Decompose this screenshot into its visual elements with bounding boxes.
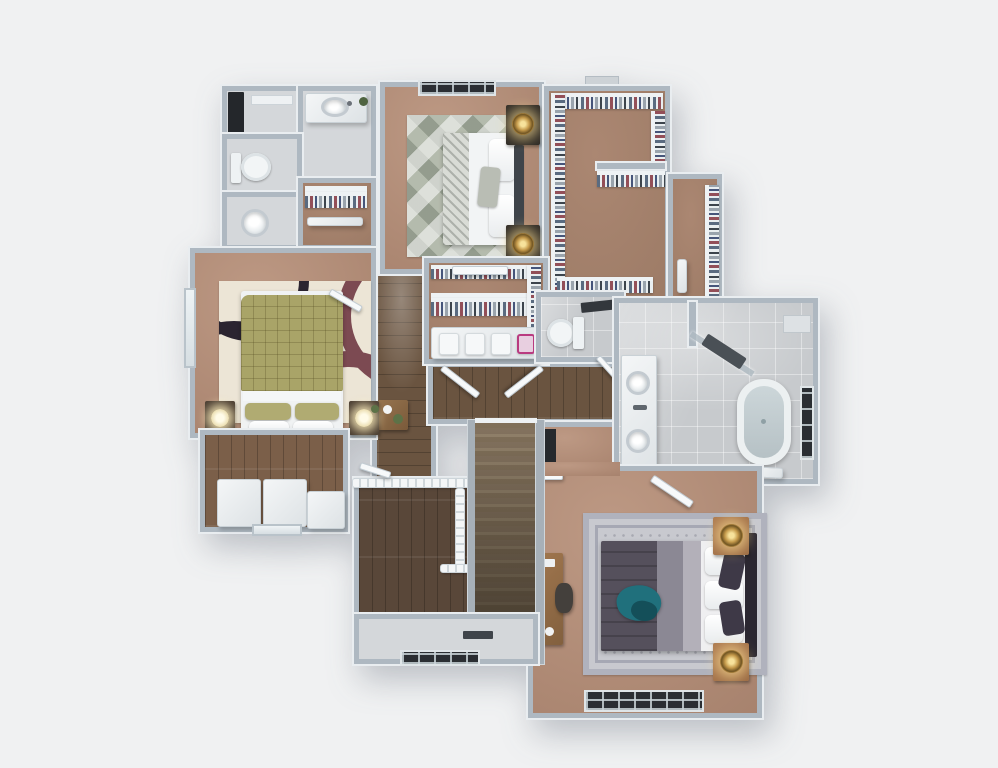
headboard — [514, 145, 524, 229]
room-powder — [222, 192, 302, 250]
lamp-icon — [512, 233, 534, 255]
window — [252, 524, 302, 536]
lamp-icon — [720, 524, 743, 547]
olive-pillow — [295, 403, 339, 420]
partition-wall — [597, 163, 665, 169]
tub-drain — [761, 419, 766, 424]
floorplan-image — [0, 0, 998, 768]
olive-pillow — [245, 403, 291, 420]
room-master-wc — [536, 292, 624, 362]
laundry-basket — [491, 333, 511, 355]
staircase-down — [475, 420, 537, 620]
laundry-basket-pink — [517, 334, 535, 354]
bed — [601, 541, 749, 651]
clothes-rack — [551, 93, 565, 295]
lamp-icon — [720, 650, 743, 673]
closet-shelf — [307, 217, 363, 226]
plant-icon — [393, 414, 403, 424]
room-hallbath-vanity — [298, 86, 376, 182]
room-master-bedroom — [528, 466, 762, 718]
window — [400, 650, 480, 666]
laundry-basket — [439, 333, 459, 355]
console-table — [378, 400, 408, 430]
tub-icon — [737, 379, 791, 465]
room-linen — [222, 86, 302, 138]
room-walkin-closet-wing — [668, 174, 722, 302]
storage-bench — [217, 479, 261, 527]
desk-item — [545, 627, 554, 636]
clothes-rack — [705, 185, 719, 297]
room-hall-closet — [298, 178, 376, 250]
clothes-rack — [557, 93, 663, 109]
sink-icon — [626, 429, 650, 453]
faucet-icon — [633, 405, 647, 410]
clothes-rack — [305, 192, 367, 208]
vase-icon — [383, 405, 392, 414]
window — [800, 386, 814, 460]
window — [184, 288, 196, 368]
shower-mat — [701, 334, 747, 370]
pedestal-sink-icon — [241, 209, 269, 237]
accent-pillow — [477, 166, 501, 208]
bed — [241, 291, 343, 437]
shower-niche — [783, 315, 811, 333]
window — [584, 690, 704, 712]
clothes-rack — [431, 298, 541, 316]
hall-light-sheen — [377, 253, 431, 479]
room-hall-wc — [222, 134, 302, 196]
floor-seam-patch — [536, 462, 620, 476]
lamp-icon — [512, 113, 534, 135]
clothes-rack — [557, 277, 653, 293]
floorplan — [0, 0, 998, 768]
counter-items — [251, 95, 293, 105]
room-bedroom2 — [380, 82, 544, 274]
room-gallery-hall — [428, 362, 628, 424]
room-walkin-closet — [544, 86, 670, 304]
toilet-icon — [241, 153, 271, 181]
room-bedroom3 — [190, 248, 376, 438]
stair-wall — [468, 420, 475, 620]
sheet-fold — [243, 391, 341, 401]
sink-icon — [321, 97, 349, 117]
toilet-icon — [547, 319, 575, 347]
toilet-tank — [573, 317, 584, 349]
desk-chair — [555, 583, 573, 613]
loft-railing — [352, 478, 480, 488]
tall-cabinet — [228, 92, 244, 134]
desk-item — [543, 559, 555, 567]
sink-icon — [626, 371, 650, 395]
stair-nosing — [475, 418, 537, 423]
comforter — [241, 295, 343, 391]
shoe-shelf — [677, 259, 687, 293]
duvet-pattern — [443, 133, 469, 245]
loft-railing — [455, 488, 465, 568]
door-leaf — [452, 266, 508, 275]
clothes-rack — [597, 171, 665, 187]
corner-counter — [307, 491, 345, 529]
clothes-rack — [651, 111, 665, 167]
room-window-nook — [200, 430, 348, 532]
room-master-bath — [614, 298, 818, 484]
storage-bench — [263, 479, 307, 527]
floor-vent — [463, 631, 493, 639]
plant-icon — [359, 97, 368, 106]
toilet-tank — [231, 153, 241, 183]
plant-icon — [371, 405, 379, 413]
faucet-icon — [347, 101, 352, 106]
lamp-icon — [211, 409, 229, 427]
laundry-basket — [465, 333, 485, 355]
window — [418, 80, 496, 96]
lamp-icon — [355, 409, 373, 427]
